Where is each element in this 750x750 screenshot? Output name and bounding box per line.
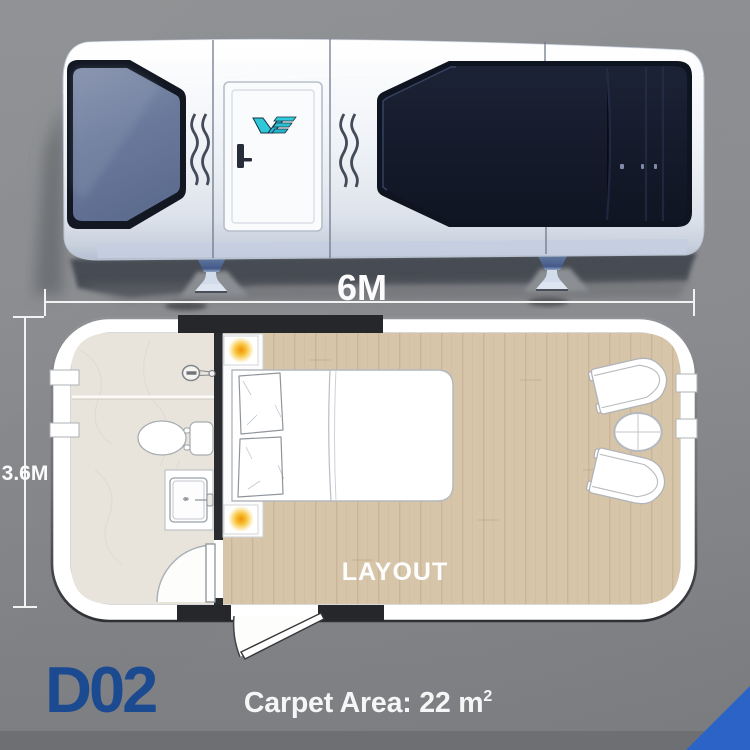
- svg-text:D02: D02: [45, 653, 156, 726]
- svg-text:LAYOUT: LAYOUT: [342, 558, 448, 586]
- svg-text:6M: 6M: [337, 267, 387, 308]
- svg-text:3.6M: 3.6M: [2, 462, 49, 485]
- svg-text:Carpet Area: 22 m2: Carpet Area: 22 m2: [244, 687, 492, 719]
